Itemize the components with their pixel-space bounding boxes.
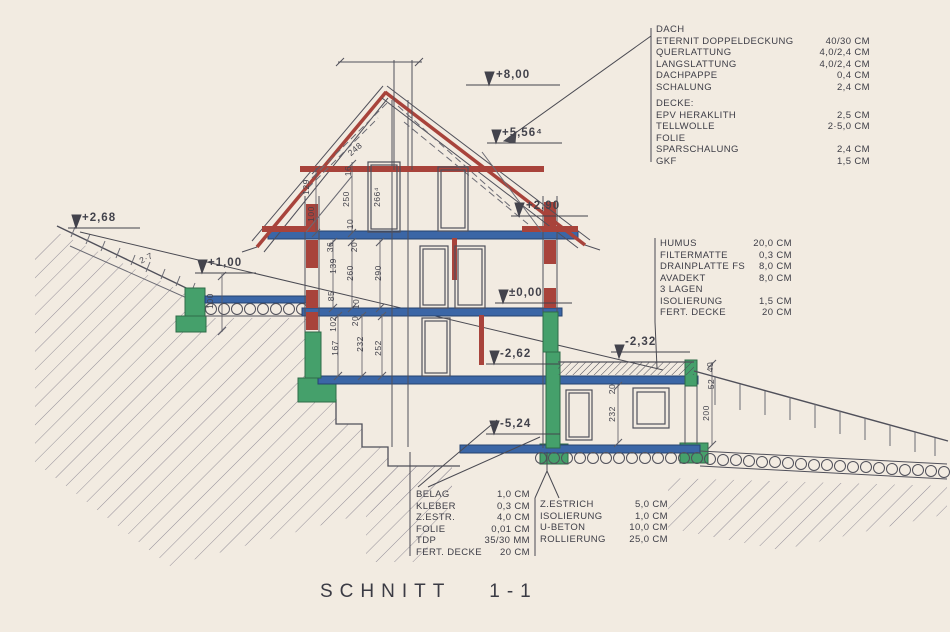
spec-row: ROLLIERUNG25,0 CM: [540, 534, 668, 546]
dim-label: 167: [330, 340, 340, 356]
spec-row: ISOLIERUNG1,5 CM: [660, 296, 792, 308]
spec-row: FERT. DECKE20 CM: [660, 307, 792, 319]
spec-row: FERT. DECKE20 CM: [416, 547, 530, 559]
spec-row: BELAG1,0 CM: [416, 489, 530, 501]
dim-label: 100: [205, 293, 215, 309]
spec-row: AVADEKT8,0 CM: [660, 273, 792, 285]
terrace-spec-block: HUMUS20,0 CM FILTERMATTE0,3 CM DRAINPLAT…: [660, 238, 792, 319]
dim-label: 20: [607, 384, 617, 394]
slab-minus262: [318, 376, 698, 384]
drawing-title: SCHNITT 1-1: [320, 581, 538, 603]
dim-label: 252: [373, 340, 383, 356]
fill-ticks: [715, 377, 935, 456]
dim-label: 20: [349, 242, 359, 252]
spec-row: 3 LAGEN: [660, 284, 792, 296]
dim-label: 290: [373, 265, 383, 281]
spec-row: FOLIE: [656, 133, 870, 145]
spec-row: DRAINPLATTE FS8,0 CM: [660, 261, 792, 273]
spec-row: DACHPAPPE0,4 CM: [656, 70, 870, 82]
roof-spec-block: DACH ETERNIT DOPPELDECKUNG40/30 CM QUERL…: [656, 24, 870, 167]
spec-row: SCHALUNG2,4 CM: [656, 82, 870, 94]
floor-spec-block-left: BELAG1,0 CM KLEBER0,3 CM Z.ESTR.4,0 CM F…: [416, 489, 530, 558]
spec-row: ETERNIT DOPPELDECKUNG40/30 CM: [656, 36, 870, 48]
dim-label: 200: [701, 405, 711, 421]
dim-label: 102: [328, 316, 338, 332]
dim-label: 260: [345, 265, 355, 281]
spec-row: FILTERMATTE0,3 CM: [660, 250, 792, 262]
spec-row: ISOLIERUNG1,0 CM: [540, 511, 668, 523]
slab-zero: [302, 308, 562, 316]
elevation-label-268: +2,68: [82, 212, 116, 224]
schnitt-drawing-sheet: DACH ETERNIT DOPPELDECKUNG40/30 CM QUERL…: [0, 0, 950, 632]
elevation-label-800: +8,00: [496, 69, 530, 81]
elevation-label-000: ±0,00: [509, 287, 543, 299]
dim-label: 52: [706, 379, 716, 389]
rollierung-right: [705, 454, 950, 478]
dim-label: 10: [345, 219, 355, 229]
floor-spec-block-right: Z.ESTRICH5,0 CM ISOLIERUNG1,0 CM U-BETON…: [540, 499, 668, 545]
elevation-label-m232: -2,32: [625, 336, 656, 348]
terrace-rollierung: [206, 304, 308, 315]
annex-humus-layer: [558, 362, 694, 375]
terrace-slab: [205, 296, 310, 316]
spec-row: HUMUS20,0 CM: [660, 238, 792, 250]
dim-label: 20: [350, 316, 360, 326]
dim-label: 139: [328, 258, 338, 274]
spec-row: QUERLATTUNG4,0/2,4 CM: [656, 47, 870, 59]
slab-minus524: [460, 445, 700, 453]
elevation-label-m524: -5,24: [500, 418, 531, 430]
dim-label: 10: [351, 299, 361, 309]
collar-beam: [300, 166, 544, 172]
spec-row: TELLWOLLE2·5,0 CM: [656, 121, 870, 133]
dim-label: 266⁴: [372, 187, 382, 207]
dim-label: 250: [341, 191, 351, 207]
dim-label: 85: [326, 291, 336, 301]
spec-row: EPV HERAKLITH2,5 CM: [656, 110, 870, 122]
walls: [305, 100, 697, 448]
spec-row: Z.ESTRICH5,0 CM: [540, 499, 668, 511]
elevation-label-290: +2,90: [526, 200, 560, 212]
spec-row: TDP35/30 MM: [416, 535, 530, 547]
dim-label: 232: [607, 406, 617, 422]
dim-label: 129: [301, 179, 311, 195]
roof-bracing-dashed: [300, 103, 528, 224]
brick-wall-segments: [306, 202, 556, 365]
spec-row: GKF1,5 CM: [656, 156, 870, 168]
spec-row: U-BETON10,0 CM: [540, 522, 668, 534]
elevation-label-100: +1,00: [208, 257, 242, 269]
dim-label: 232: [355, 336, 365, 352]
dim-label: 36: [325, 242, 335, 252]
spec-row: LANGSLATTUNG4,0/2,4 CM: [656, 59, 870, 71]
roof-spec-heading: DACH: [656, 24, 870, 36]
elevation-label-556: +5,56⁴: [502, 127, 543, 139]
spec-row: Z.ESTR.4,0 CM: [416, 512, 530, 524]
dim-label: 100: [306, 206, 316, 222]
dim-label: 16: [343, 166, 353, 176]
spec-row: KLEBER0,3 CM: [416, 501, 530, 513]
terrain-right: [694, 371, 950, 479]
spec-row: SPARSCHALUNG2,4 CM: [656, 144, 870, 156]
elevation-label-m262: -2,62: [500, 348, 531, 360]
dim-label: 40: [705, 362, 715, 372]
spec-row: FOLIE0,01 CM: [416, 524, 530, 536]
ceiling-spec-heading: DECKE:: [656, 98, 870, 110]
